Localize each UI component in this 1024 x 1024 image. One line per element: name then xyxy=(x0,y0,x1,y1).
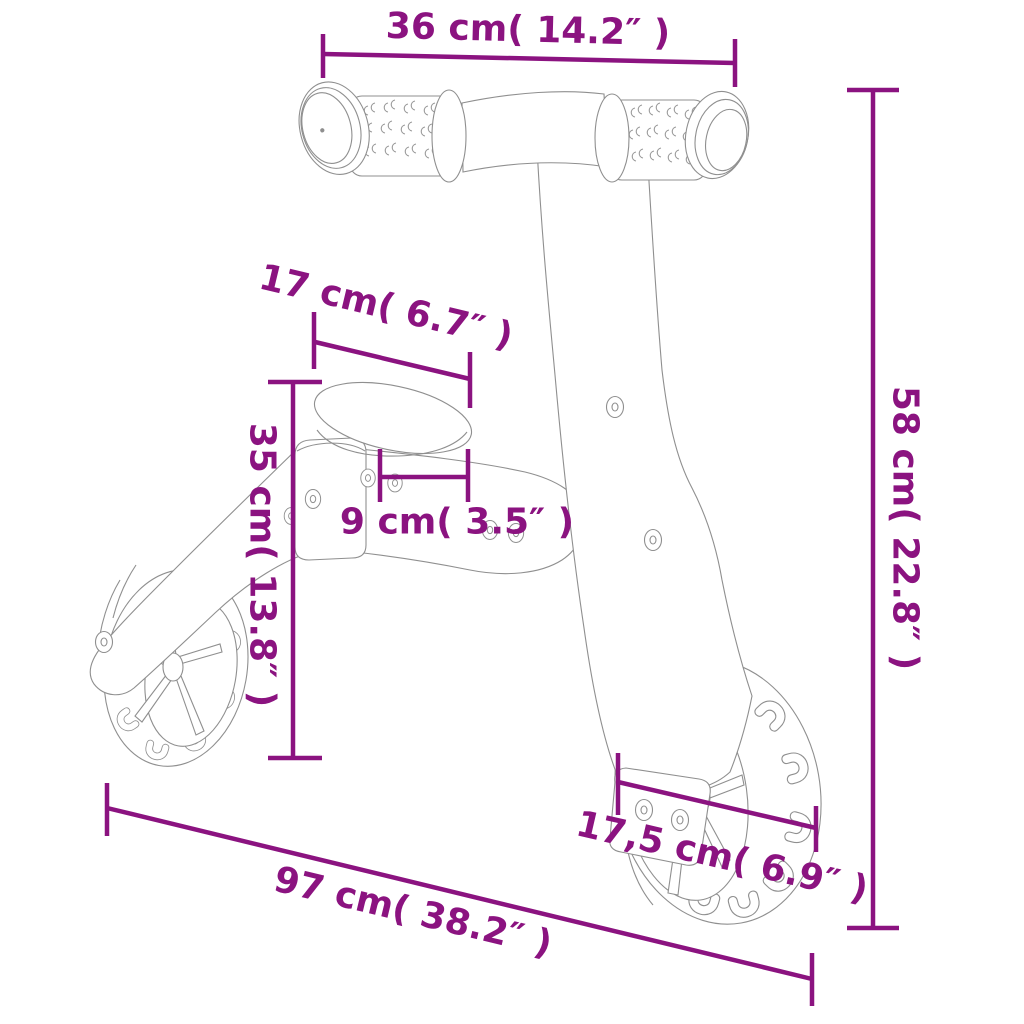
left-grip-collar xyxy=(432,90,466,182)
dim-label-seat-height: 35 cm( 13.8″ ) xyxy=(242,423,283,707)
dim-label-overall-height: 58 cm( 22.8″ ) xyxy=(885,386,926,670)
dim-label-seat-width: 9 cm( 3.5″ ) xyxy=(340,502,574,543)
right-grip-collar xyxy=(595,94,629,182)
steering-column xyxy=(537,148,752,792)
dim-label-handlebar-width: 36 cm( 14.2″ ) xyxy=(385,6,670,54)
handlebar xyxy=(289,74,756,184)
dimension-diagram: 36 cm( 14.2″ ) 58 cm( 22.8″ ) 17 cm( 6.7… xyxy=(0,0,1024,1024)
